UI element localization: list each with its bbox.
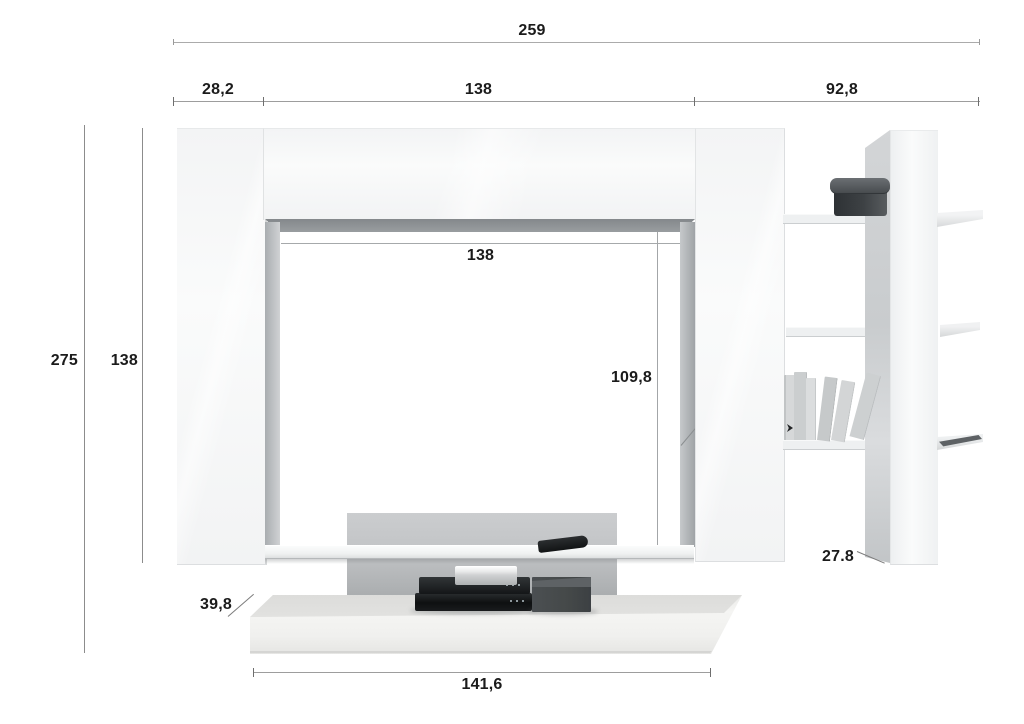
dim-opening-width-line — [281, 243, 680, 244]
left-cabinet-gloss — [177, 129, 265, 564]
dim-bench-width-line — [253, 672, 711, 673]
dim-column-height-label: 138 — [98, 353, 138, 369]
top-bridge-gloss — [264, 129, 696, 220]
media-player-lower — [415, 593, 532, 611]
bridge-underside — [265, 219, 695, 232]
silver-device — [455, 566, 517, 585]
media-player-lower-leds — [510, 600, 512, 602]
dim-width-right-label: 92,8 — [700, 82, 984, 98]
bookcase-shelf3-left — [783, 440, 865, 450]
dim-sections-tick-2 — [263, 97, 264, 106]
bookcase-shelf1-right — [937, 210, 983, 227]
dim-total-width-line — [173, 42, 980, 43]
bookcase-shelf2-right — [940, 322, 980, 337]
floating-shelf — [265, 545, 694, 559]
dim-total-height-line — [84, 125, 85, 653]
dim-total-width-label: 259 — [502, 23, 562, 39]
right-cabinet — [695, 128, 785, 562]
opening-right-side — [680, 222, 695, 547]
dim-sections-tick-4 — [978, 97, 979, 106]
bookcase-column-front — [890, 130, 938, 565]
dim-bench-width-tick-right — [710, 668, 711, 677]
right-cabinet-gloss — [696, 129, 784, 561]
dim-total-height-label: 275 — [36, 353, 78, 369]
bookcase-shelf2-left — [786, 327, 865, 337]
book-3 — [806, 378, 816, 440]
dim-sections-tick-3 — [694, 97, 695, 106]
opening-left-side — [265, 222, 280, 547]
dim-opening-width-label: 138 — [281, 248, 680, 264]
dim-sections-line — [173, 101, 980, 102]
dim-width-left-label: 28,2 — [173, 82, 263, 98]
floating-shelf-shadow — [265, 558, 694, 564]
top-bridge-cabinet — [263, 128, 696, 220]
tv-bench-bottom-edge — [250, 651, 712, 653]
dim-total-width-tick-right — [979, 39, 980, 45]
dim-column-height-line — [142, 128, 143, 563]
dim-total-width-tick-left — [173, 39, 174, 45]
dim-bench-depth-label: 39,8 — [200, 597, 244, 613]
dim-bench-width-tick-left — [253, 668, 254, 677]
decor-box-lid — [830, 178, 890, 194]
furniture-dimension-diagram: 259 28,2 138 92,8 275 138 138 109,8 27.8… — [0, 0, 1024, 724]
dim-bench-width-label: 141,6 — [253, 677, 711, 693]
left-cabinet — [177, 128, 267, 565]
dim-sections-tick-1 — [173, 97, 174, 106]
dim-opening-height-label: 109,8 — [596, 370, 652, 386]
dim-opening-height-line — [657, 232, 658, 545]
dim-width-center-label: 138 — [263, 82, 694, 98]
